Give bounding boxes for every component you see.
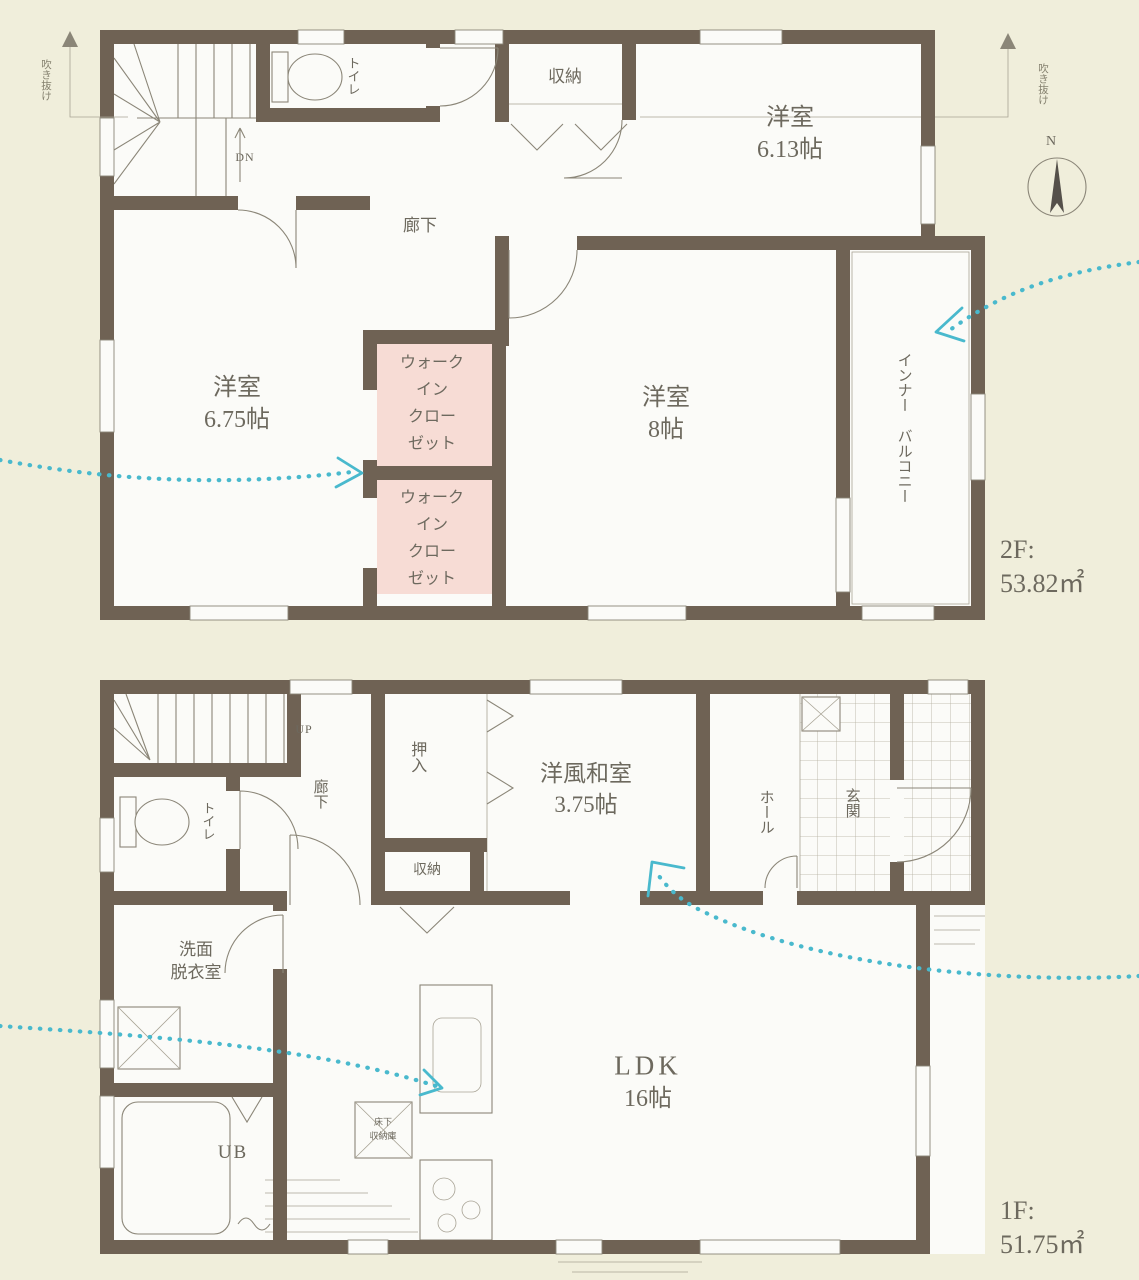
room-label-toilet-1f: トイレ: [200, 802, 215, 841]
wic1-line4: ゼット: [400, 431, 464, 458]
toilet-icon-1f: [120, 797, 189, 847]
room-label-bedroom675-size: 6.75帖: [204, 407, 270, 435]
section-leader-right: [935, 33, 1016, 117]
underfloor-storage-label-line1: 床下: [374, 1117, 392, 1127]
wic2-line1: ウォーク: [400, 485, 464, 512]
room-label-senmen-line1: 洗面: [179, 940, 213, 960]
roof-note-left: 吹き抜け: [39, 59, 51, 101]
room-label-storage-2f: 収納: [548, 67, 582, 87]
room-label-storage-1f: 収納: [413, 863, 441, 879]
wic2-line2: イン: [400, 512, 464, 539]
stairs-up-label: UP: [295, 723, 312, 737]
room-label-bedroom613-size: 6.13帖: [757, 137, 823, 165]
porch-tiles: [904, 694, 971, 891]
floor2-plan: [100, 30, 985, 620]
floorplan-linework: [0, 0, 1139, 1280]
shoe-cabinet-icon: [802, 697, 840, 731]
wic2-line4: ゼット: [400, 566, 464, 593]
balcony-line2: バルコニー: [896, 429, 912, 504]
room-label-ldk-name: LDK: [614, 1050, 682, 1081]
compass-north-label: N: [1046, 134, 1056, 150]
floor2-area-label: 2F:: [1000, 535, 1035, 565]
wic1-line3: クロー: [400, 404, 464, 431]
room-label-bedroom8-size: 8帖: [648, 417, 684, 445]
room-label-bedroom675-name: 洋室: [213, 375, 261, 403]
room-label-washitsu-size: 3.75帖: [554, 792, 617, 818]
roof-note-right: 吹き抜け: [1036, 63, 1048, 105]
room-label-hallway-1f: 廊下: [310, 779, 327, 809]
floorplan-canvas: 洋室 6.13帖 収納 トイレ DN 廊下 洋室 6.75帖 洋室 8帖 ウォー…: [0, 0, 1139, 1280]
room-label-unit-bath: UB: [218, 1142, 248, 1164]
room-label-ldk-size: 16帖: [624, 1086, 672, 1114]
floor1-area-label: 1F:: [1000, 1196, 1035, 1226]
room-label-oshiire: 押入: [407, 741, 425, 773]
room-label-senmen-line2: 脱衣室: [171, 963, 222, 983]
room-label-balcony: インナー バルコニー: [894, 353, 911, 504]
room-label-bedroom613-name: 洋室: [766, 105, 814, 133]
balcony-line1: インナー: [896, 353, 912, 413]
floor2-area-value: 53.82㎡: [1000, 569, 1085, 599]
stove-icon: [420, 1160, 492, 1240]
room-label-hallway-2f: 廊下: [403, 216, 437, 236]
floor1-area-value: 51.75㎡: [1000, 1230, 1085, 1260]
north-needle: [1050, 159, 1064, 213]
room-label-genkan: 玄関: [842, 788, 859, 818]
room-label-washitsu-name: 洋風和室: [540, 761, 632, 787]
stairs-down-label: DN: [235, 151, 254, 165]
room-label-hall: ホール: [756, 790, 773, 835]
kitchen-counter: [420, 985, 492, 1240]
room-label-walkin-closet-2: ウォーク イン クロー ゼット: [400, 485, 464, 593]
room-label-walkin-closet-1: ウォーク イン クロー ゼット: [400, 350, 464, 458]
toilet-icon-2f: [272, 52, 342, 102]
wic1-line2: イン: [400, 377, 464, 404]
compass-icon: [1028, 158, 1086, 216]
wic1-line1: ウォーク: [400, 350, 464, 377]
room-label-bedroom8-name: 洋室: [642, 385, 690, 413]
underfloor-storage-label-line2: 収納庫: [369, 1131, 396, 1141]
wic2-line3: クロー: [400, 539, 464, 566]
room-label-toilet-2f: トイレ: [345, 57, 360, 96]
